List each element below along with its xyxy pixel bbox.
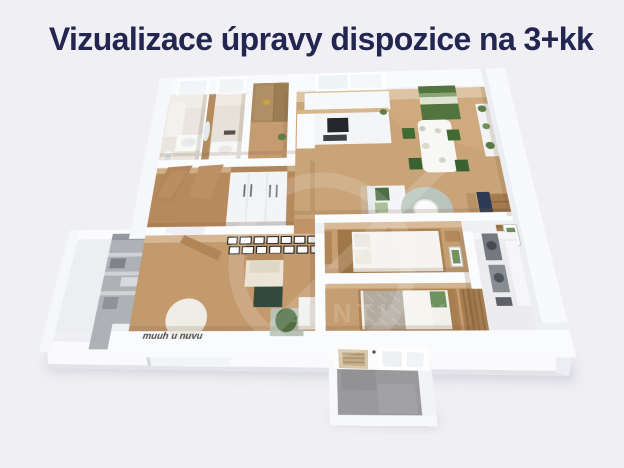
svg-text:CENTURY: CENTURY [285, 298, 452, 328]
